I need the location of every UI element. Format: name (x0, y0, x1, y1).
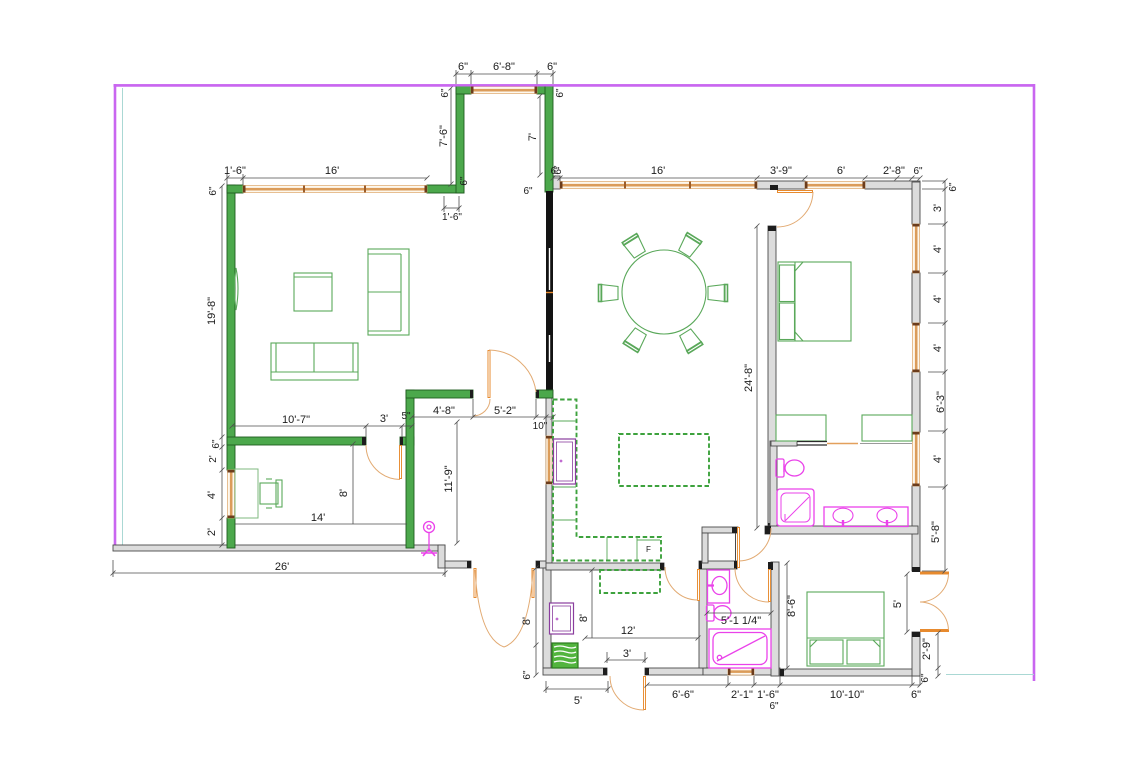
svg-text:5": 5" (401, 411, 411, 422)
svg-text:4'-8": 4'-8" (433, 405, 455, 417)
svg-text:7': 7' (527, 133, 539, 141)
svg-text:1'-6": 1'-6" (224, 165, 246, 177)
svg-text:5'-1 1/4": 5'-1 1/4" (721, 615, 761, 627)
svg-text:3'-9": 3'-9" (770, 165, 792, 177)
svg-text:6": 6" (769, 701, 779, 712)
svg-text:2'-8": 2'-8" (883, 165, 905, 177)
svg-text:8': 8' (521, 617, 533, 625)
svg-text:4': 4' (932, 245, 944, 253)
svg-text:24'-8": 24'-8" (743, 364, 755, 392)
svg-text:5'-8": 5'-8" (930, 521, 942, 543)
svg-text:11'-9": 11'-9" (443, 465, 455, 492)
svg-text:6": 6" (913, 166, 923, 177)
svg-text:6': 6' (837, 165, 845, 177)
svg-text:6": 6" (459, 176, 470, 186)
svg-text:19'-8": 19'-8" (206, 297, 218, 325)
svg-text:3': 3' (623, 648, 631, 660)
svg-text:5': 5' (574, 695, 582, 707)
svg-text:6": 6" (211, 439, 222, 449)
svg-text:6": 6" (208, 186, 219, 196)
svg-text:4': 4' (206, 491, 218, 499)
svg-text:26': 26' (275, 561, 289, 573)
svg-text:3': 3' (380, 413, 388, 425)
svg-text:6'-8": 6'-8" (493, 61, 515, 73)
svg-text:14': 14' (311, 512, 325, 524)
svg-text:F: F (646, 545, 651, 554)
svg-text:6": 6" (547, 61, 557, 73)
svg-text:6": 6" (948, 182, 959, 192)
svg-text:6": 6" (550, 166, 560, 177)
svg-text:10": 10" (533, 421, 548, 432)
svg-text:2': 2' (206, 528, 218, 536)
svg-text:2'-1": 2'-1" (731, 689, 753, 701)
svg-text:7'-6": 7'-6" (438, 125, 450, 147)
svg-text:2': 2' (208, 455, 219, 463)
svg-text:4': 4' (932, 455, 944, 463)
svg-text:5'-2": 5'-2" (494, 405, 516, 417)
svg-text:6": 6" (458, 61, 468, 73)
svg-text:10'-7": 10'-7" (282, 414, 310, 426)
svg-text:6": 6" (440, 88, 451, 98)
svg-text:12': 12' (621, 625, 635, 637)
svg-text:6'-3": 6'-3" (935, 391, 947, 413)
svg-text:6": 6" (523, 186, 533, 197)
svg-text:6": 6" (911, 689, 921, 701)
svg-text:5': 5' (892, 600, 904, 608)
svg-text:2'-9": 2'-9" (921, 638, 933, 660)
svg-text:1'-6": 1'-6" (442, 212, 462, 223)
svg-text:6'-6": 6'-6" (672, 689, 694, 701)
svg-text:4': 4' (932, 295, 944, 303)
svg-text:8': 8' (338, 489, 350, 497)
svg-text:8'-6": 8'-6" (786, 595, 798, 617)
svg-text:3': 3' (932, 204, 944, 212)
svg-text:8': 8' (578, 614, 590, 622)
svg-text:6": 6" (522, 670, 533, 680)
svg-text:6": 6" (920, 673, 931, 683)
svg-text:1'-6": 1'-6" (757, 689, 779, 701)
svg-text:16': 16' (651, 165, 665, 177)
svg-text:16': 16' (325, 165, 339, 177)
svg-text:10'-10": 10'-10" (830, 689, 864, 701)
svg-text:6": 6" (555, 88, 566, 98)
svg-text:4': 4' (932, 344, 944, 352)
